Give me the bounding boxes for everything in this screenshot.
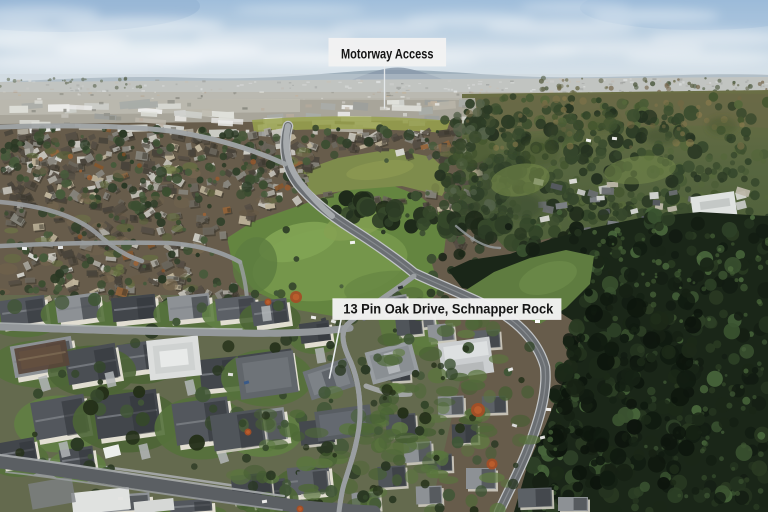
svg-text:Motorway Access: Motorway Access [341,47,434,62]
svg-text:13 Pin Oak Drive, Schnapper Ro: 13 Pin Oak Drive, Schnapper Rock [343,301,553,317]
